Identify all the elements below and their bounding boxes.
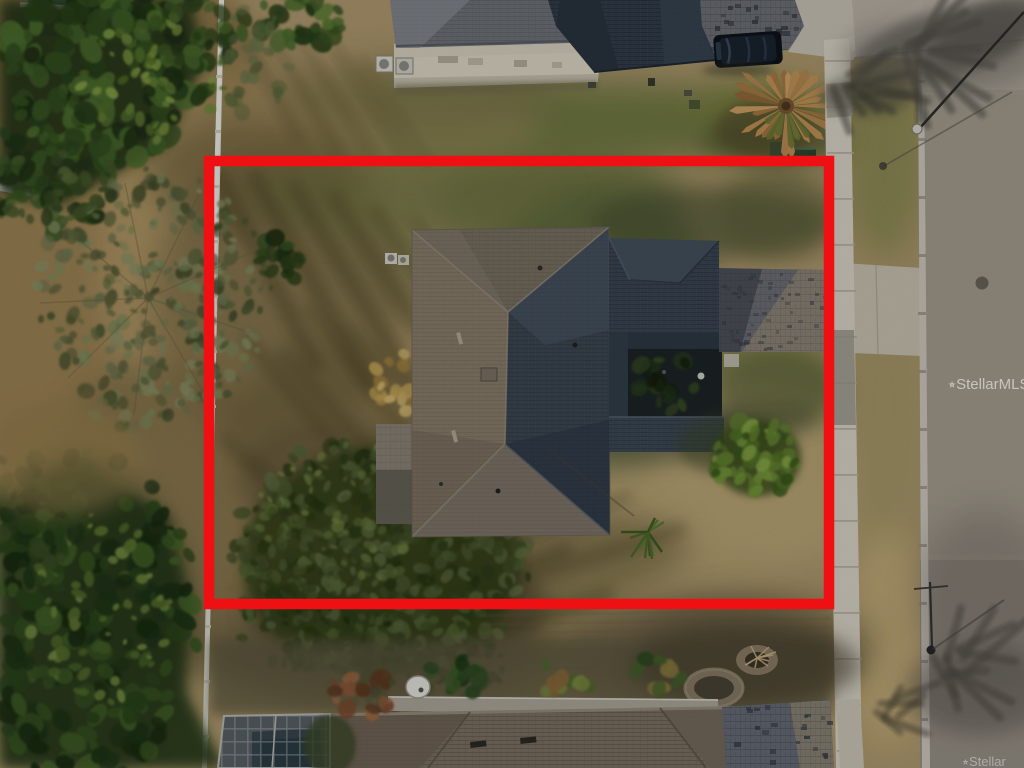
svg-text:⭒StellarMLS: ⭒StellarMLS	[948, 376, 1024, 393]
svg-text:⭒Stellar: ⭒Stellar	[962, 754, 1007, 768]
